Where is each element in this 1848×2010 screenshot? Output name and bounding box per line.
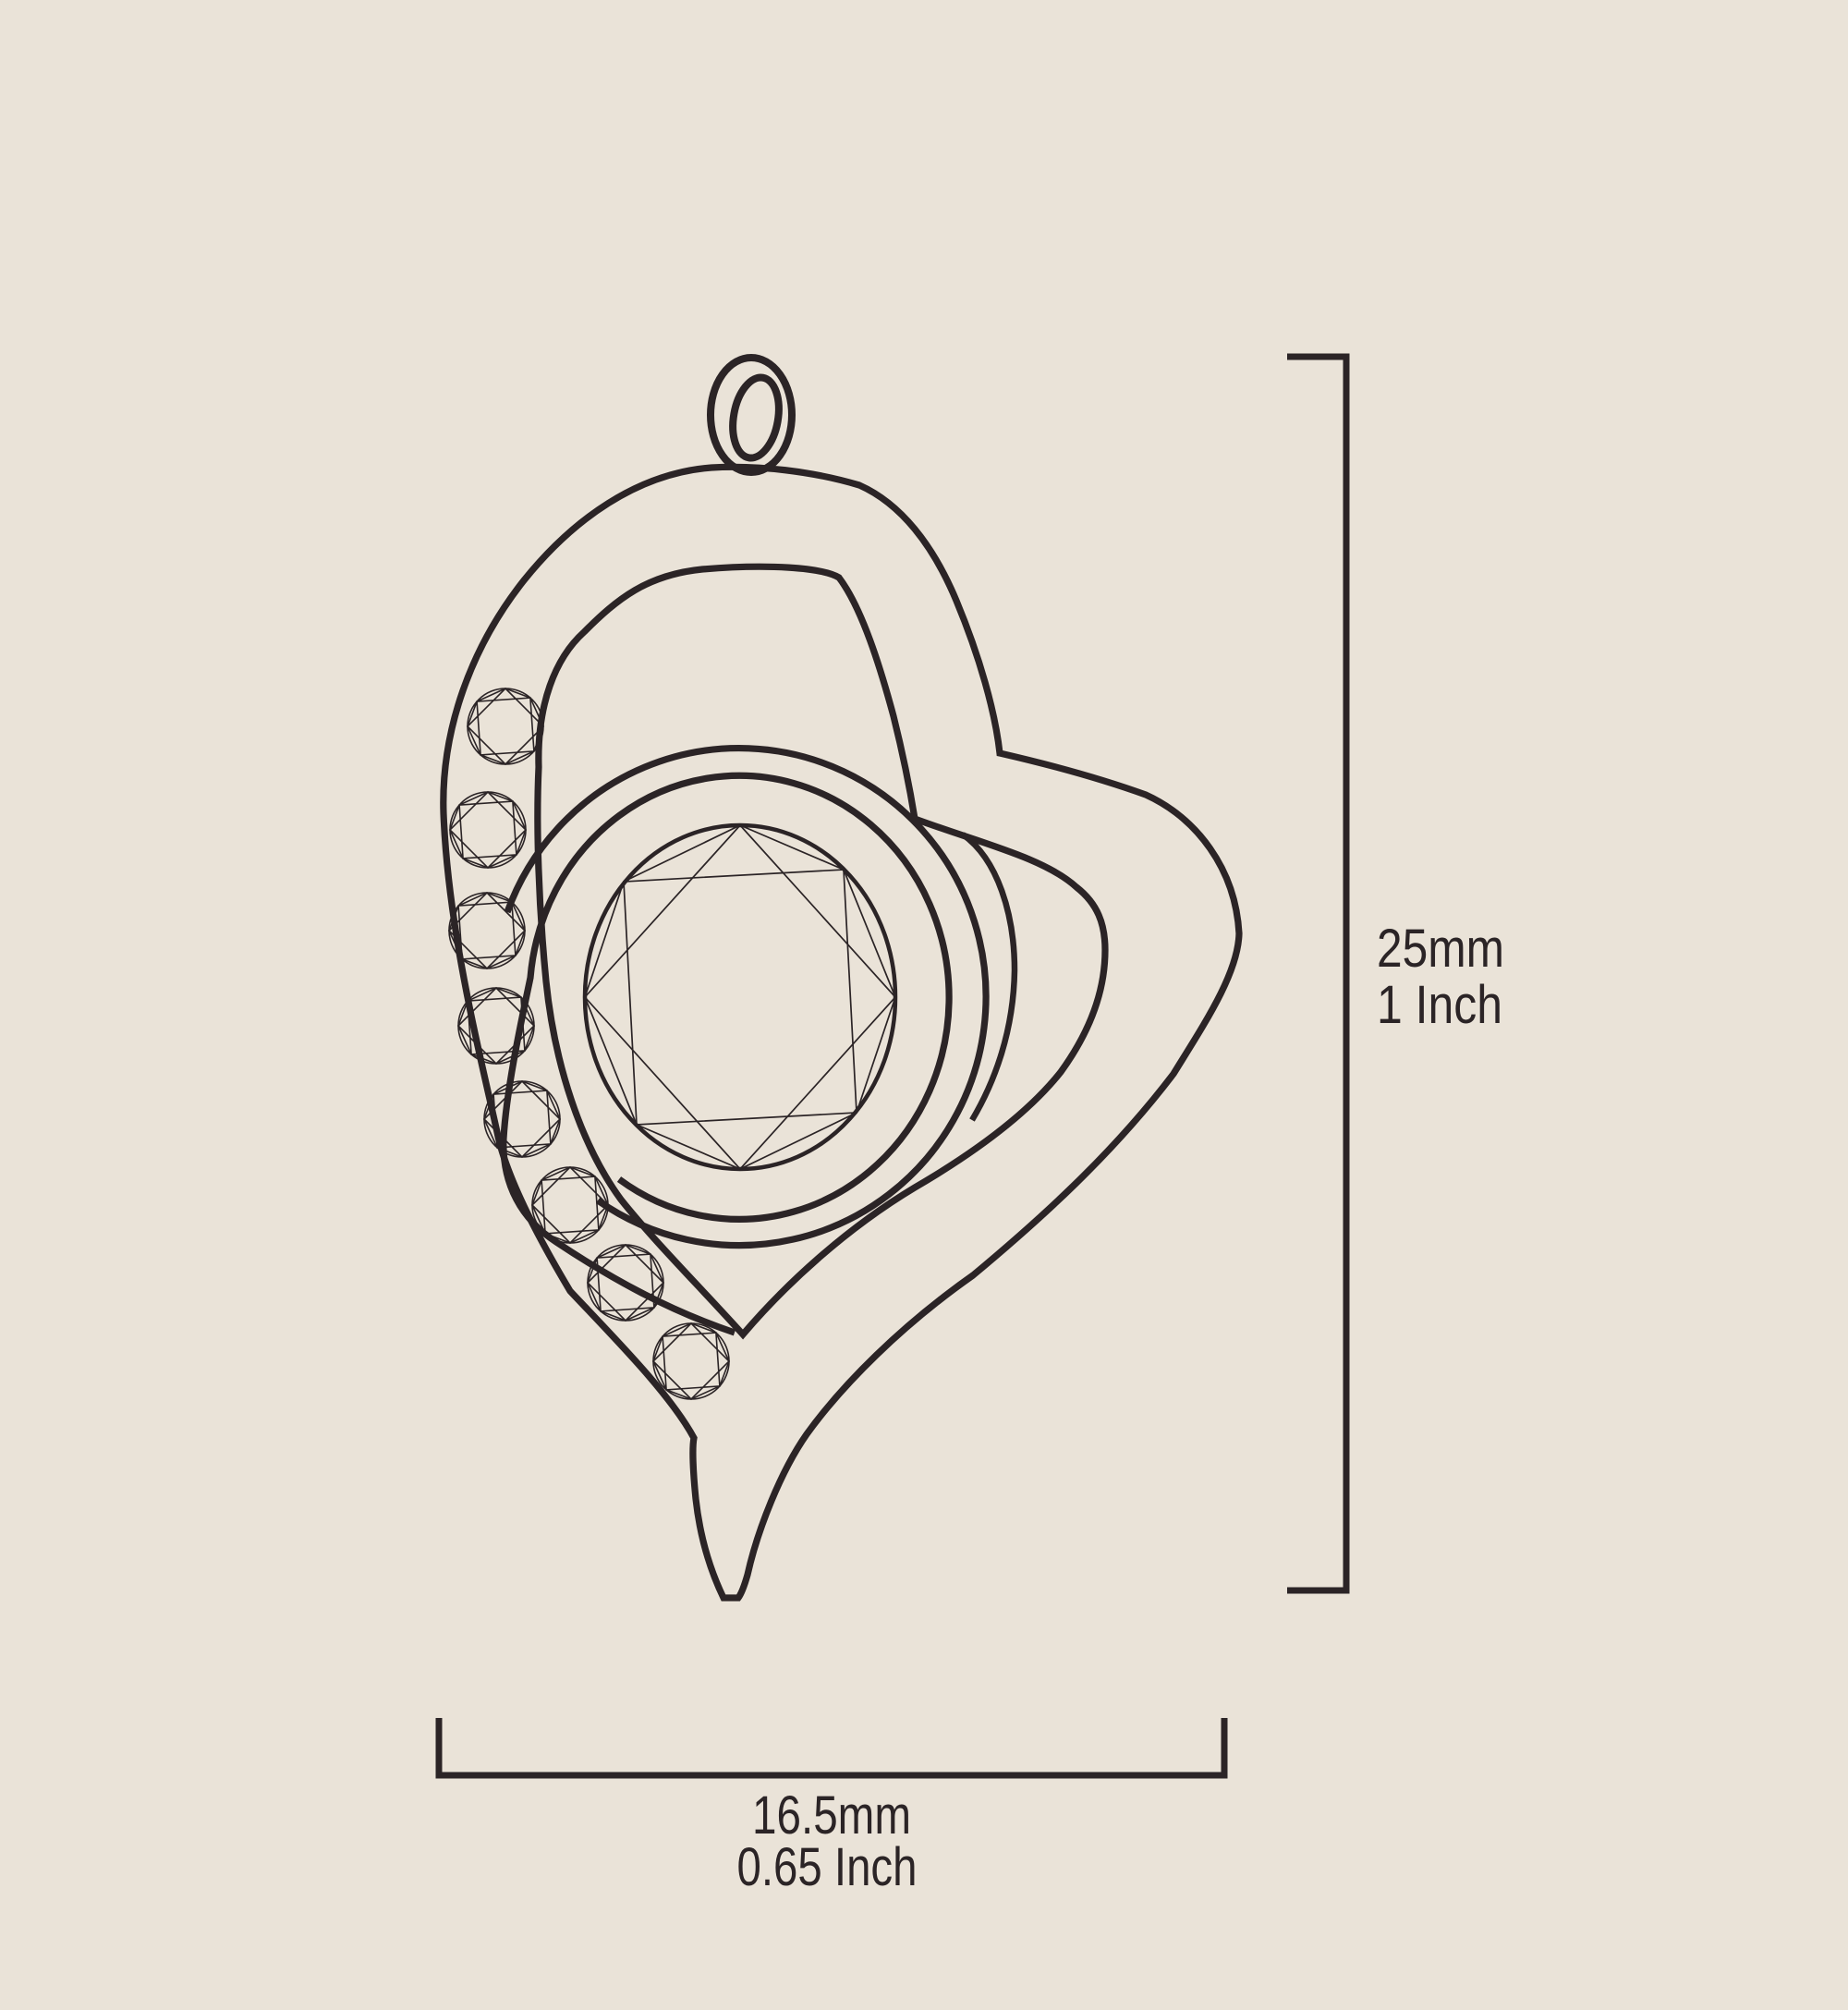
svg-text:0.65 Inch: 0.65 Inch [737,1837,918,1897]
svg-text:1 Inch: 1 Inch [1377,975,1502,1035]
svg-text:25mm: 25mm [1377,919,1504,979]
